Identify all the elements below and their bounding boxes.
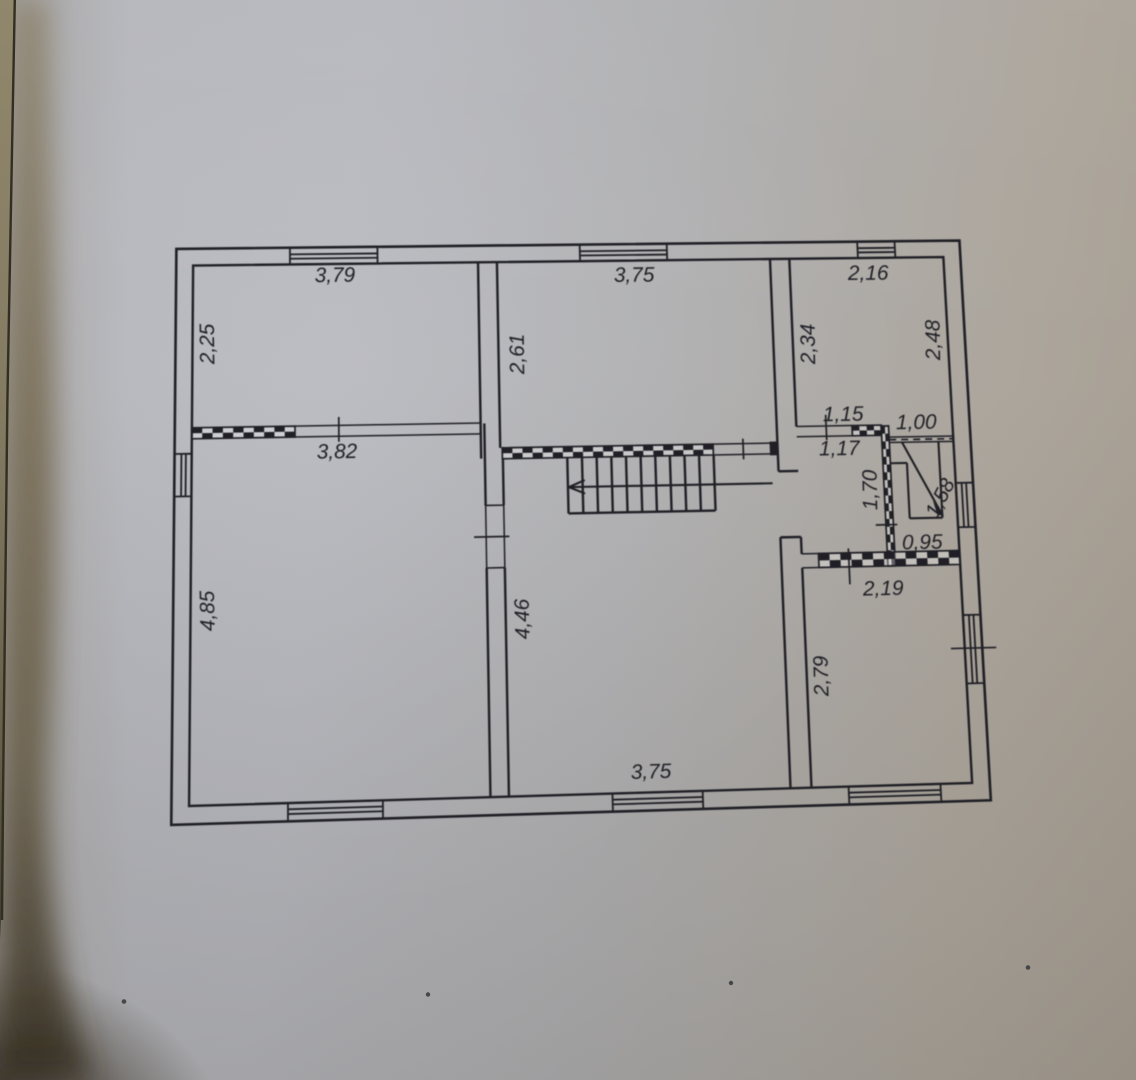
svg-text:0,95: 0,95	[902, 530, 943, 554]
svg-text:1,58: 1,58	[921, 475, 960, 522]
svg-text:2,19: 2,19	[862, 577, 904, 601]
svg-text:3,75: 3,75	[614, 263, 655, 286]
svg-text:2,79: 2,79	[809, 655, 833, 697]
svg-text:1,17: 1,17	[819, 437, 861, 461]
svg-text:1,00: 1,00	[896, 411, 937, 435]
svg-text:2,16: 2,16	[847, 262, 889, 286]
svg-text:2,25: 2,25	[196, 323, 220, 365]
svg-text:4,46: 4,46	[511, 598, 535, 639]
svg-text:3,75: 3,75	[630, 760, 672, 784]
svg-text:1,70: 1,70	[859, 469, 883, 510]
svg-text:2,34: 2,34	[797, 324, 821, 366]
svg-text:2,48: 2,48	[922, 319, 946, 361]
svg-text:3,79: 3,79	[315, 264, 356, 287]
svg-text:4,85: 4,85	[196, 590, 220, 631]
svg-text:3,82: 3,82	[317, 440, 358, 464]
svg-text:1,15: 1,15	[823, 403, 864, 427]
svg-text:2,61: 2,61	[506, 334, 530, 376]
